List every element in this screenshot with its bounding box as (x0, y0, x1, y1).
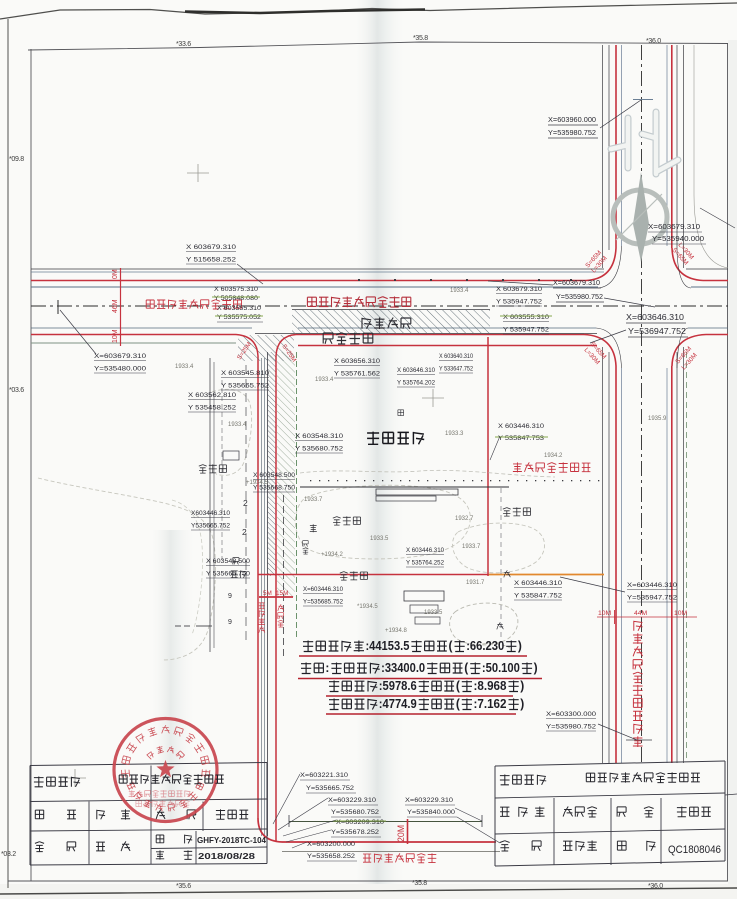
svg-text:1933.7: 1933.7 (462, 544, 481, 550)
svg-text::50.100: :50.100 (482, 661, 520, 675)
svg-text:*1934.5: *1934.5 (357, 604, 378, 610)
svg-text:1933.5: 1933.5 (370, 536, 389, 542)
svg-text:10M: 10M (674, 610, 688, 617)
svg-text:X 603446.310: X 603446.310 (406, 547, 445, 554)
svg-text:X 603679.310: X 603679.310 (496, 286, 542, 293)
svg-text::33400.0: :33400.0 (381, 661, 425, 675)
svg-text:Y 535665.750: Y 535665.750 (206, 571, 250, 578)
svg-text:Y 535947.752: Y 535947.752 (503, 327, 549, 334)
svg-text:X 603562.810: X 603562.810 (188, 392, 236, 399)
svg-text:1933.3: 1933.3 (445, 431, 464, 437)
svg-text:Y=535940.000: Y=535940.000 (652, 236, 704, 243)
svg-text::8.968: :8.968 (474, 679, 507, 693)
svg-text:X 603548.500: X 603548.500 (206, 558, 250, 565)
svg-text:1933.4: 1933.4 (175, 364, 194, 370)
svg-text:*03.2: *03.2 (1, 851, 16, 858)
svg-text:*36.0: *36.0 (648, 883, 663, 890)
svg-text:Y=535980.752: Y=535980.752 (546, 724, 596, 731)
svg-text:46M: 46M (112, 299, 119, 313)
svg-text:*35.6: *35.6 (176, 883, 191, 890)
svg-text:*03.6: *03.6 (9, 387, 24, 394)
svg-text:Y 535575.052: Y 535575.052 (217, 314, 262, 321)
svg-text::66.230: :66.230 (466, 639, 504, 653)
svg-text:Y 535665.752: Y 535665.752 (221, 383, 269, 390)
svg-text:QC1808046: QC1808046 (668, 844, 721, 856)
svg-text:X=603221.310: X=603221.310 (300, 772, 348, 779)
svg-text:X 603446.310: X 603446.310 (498, 423, 544, 430)
svg-text:Y=535665.752: Y=535665.752 (306, 785, 354, 792)
svg-text:X=603200.000: X=603200.000 (307, 841, 355, 848)
svg-text:5M: 5M (263, 590, 272, 597)
svg-text:Y 533647.752: Y 533647.752 (439, 367, 474, 373)
svg-text:0M: 0M (112, 269, 119, 279)
svg-text:*33.6: *33.6 (176, 41, 191, 48)
svg-text:1933.7: 1933.7 (304, 497, 323, 503)
svg-text:): ) (520, 697, 524, 711)
svg-text:9: 9 (228, 593, 232, 600)
svg-text:1933.5: 1933.5 (424, 610, 443, 616)
svg-text:): ) (534, 661, 538, 675)
svg-text:X 603656.310: X 603656.310 (334, 358, 380, 365)
svg-text:X=603960.000: X=603960.000 (548, 115, 596, 124)
svg-text:Y=535680.752: Y=535680.752 (331, 809, 379, 816)
svg-text:1933.4: 1933.4 (228, 422, 247, 428)
svg-text:Y 535680.752: Y 535680.752 (295, 446, 343, 453)
svg-text:Y 535947.752: Y 535947.752 (496, 299, 542, 306)
svg-text:X=603209.310: X=603209.310 (336, 819, 384, 826)
svg-text:9: 9 (228, 619, 232, 626)
svg-text:Y 515658.252: Y 515658.252 (186, 257, 236, 264)
svg-text:X 603548.500: X 603548.500 (253, 472, 295, 479)
svg-text:Y 535847.752: Y 535847.752 (514, 593, 562, 600)
svg-text:Y 505848.080: Y 505848.080 (214, 295, 259, 302)
svg-text:1932.7: 1932.7 (455, 516, 474, 522)
svg-text:X 603545.810: X 603545.810 (221, 370, 269, 377)
svg-text::5978.6: :5978.6 (379, 679, 417, 693)
svg-text:*35.8: *35.8 (413, 35, 428, 42)
svg-text:44M: 44M (634, 610, 648, 617)
svg-text:Y 535458.252: Y 535458.252 (188, 405, 236, 412)
svg-text:X=603679.310: X=603679.310 (648, 224, 700, 231)
svg-text:+1934.2: +1934.2 (321, 552, 344, 558)
svg-text:*36.0: *36.0 (646, 38, 661, 45)
svg-text:): ) (518, 639, 522, 653)
svg-text:1933.4: 1933.4 (450, 288, 469, 294)
svg-text::4774.9: :4774.9 (379, 697, 417, 711)
svg-text:X=603300.000: X=603300.000 (546, 711, 596, 718)
svg-text:*35.8: *35.8 (412, 880, 427, 887)
svg-text:Y=535947.752: Y=535947.752 (627, 595, 677, 602)
svg-text:X 603555.310: X 603555.310 (503, 314, 549, 321)
svg-text:X=603679.310: X=603679.310 (94, 353, 146, 360)
svg-text:Y=536947.752: Y=536947.752 (628, 327, 686, 336)
svg-text:X=603679.310: X=603679.310 (553, 278, 600, 287)
svg-text:Y 535847.753: Y 535847.753 (498, 435, 544, 442)
svg-text:2018/08/28: 2018/08/28 (198, 852, 256, 861)
svg-text:1933.4: 1933.4 (315, 377, 334, 383)
svg-text:X 603548.310: X 603548.310 (295, 433, 343, 440)
svg-text:X 603646.310: X 603646.310 (397, 367, 436, 374)
svg-text:Y=535980.752: Y=535980.752 (556, 292, 603, 301)
svg-text:20M: 20M (396, 825, 406, 842)
svg-text:*09.8: *09.8 (9, 156, 24, 163)
svg-text:15M: 15M (276, 590, 288, 597)
svg-text:X=603229.310: X=603229.310 (328, 797, 376, 804)
svg-text:X=603446.310: X=603446.310 (627, 582, 677, 589)
svg-text:Y 535764.252: Y 535764.252 (406, 560, 445, 567)
svg-text:+1934.8: +1934.8 (385, 628, 408, 634)
svg-text:10M: 10M (598, 610, 612, 617)
svg-text::: : (325, 661, 329, 675)
svg-text:Y=535678.252: Y=535678.252 (331, 829, 379, 836)
svg-text:X 603679.310: X 603679.310 (186, 244, 236, 251)
svg-text:Y=535840.000: Y=535840.000 (407, 809, 455, 816)
svg-text:X 603575.310: X 603575.310 (214, 286, 259, 293)
svg-text:2: 2 (243, 498, 248, 508)
svg-text:10M: 10M (112, 329, 119, 343)
svg-text:Y 535764.202: Y 535764.202 (397, 380, 436, 387)
svg-text:Y=535658.252: Y=535658.252 (307, 853, 355, 860)
svg-text:Y=535685.752: Y=535685.752 (303, 599, 343, 606)
svg-text:X 603640.310: X 603640.310 (439, 354, 474, 360)
svg-text:X 603555.310: X 603555.310 (217, 305, 262, 312)
svg-text::7.162: :7.162 (474, 697, 507, 711)
svg-text:+1934.5: +1934.5 (246, 480, 269, 486)
svg-text:1934.2: 1934.2 (544, 453, 563, 459)
svg-text:Y=535980.752: Y=535980.752 (548, 128, 596, 137)
svg-text:1931.7: 1931.7 (466, 580, 485, 586)
svg-text:X 603446.310: X 603446.310 (514, 580, 562, 587)
svg-text:X=603446.310: X=603446.310 (303, 586, 343, 593)
svg-text:X=603229.310: X=603229.310 (405, 797, 453, 804)
svg-text:Y=535480.000: Y=535480.000 (94, 366, 146, 373)
svg-text:X603446.310: X603446.310 (191, 510, 230, 517)
svg-text:X=603646.310: X=603646.310 (626, 313, 685, 322)
svg-text::44153.5: :44153.5 (365, 639, 409, 653)
svg-text:GHFY-2018TC-104: GHFY-2018TC-104 (197, 836, 266, 845)
svg-text:Y535665.752: Y535665.752 (191, 523, 230, 530)
svg-text:): ) (520, 679, 524, 693)
svg-text:Y 535761.562: Y 535761.562 (334, 371, 380, 378)
svg-text:2: 2 (242, 527, 247, 537)
svg-text:1935.9: 1935.9 (648, 416, 667, 422)
